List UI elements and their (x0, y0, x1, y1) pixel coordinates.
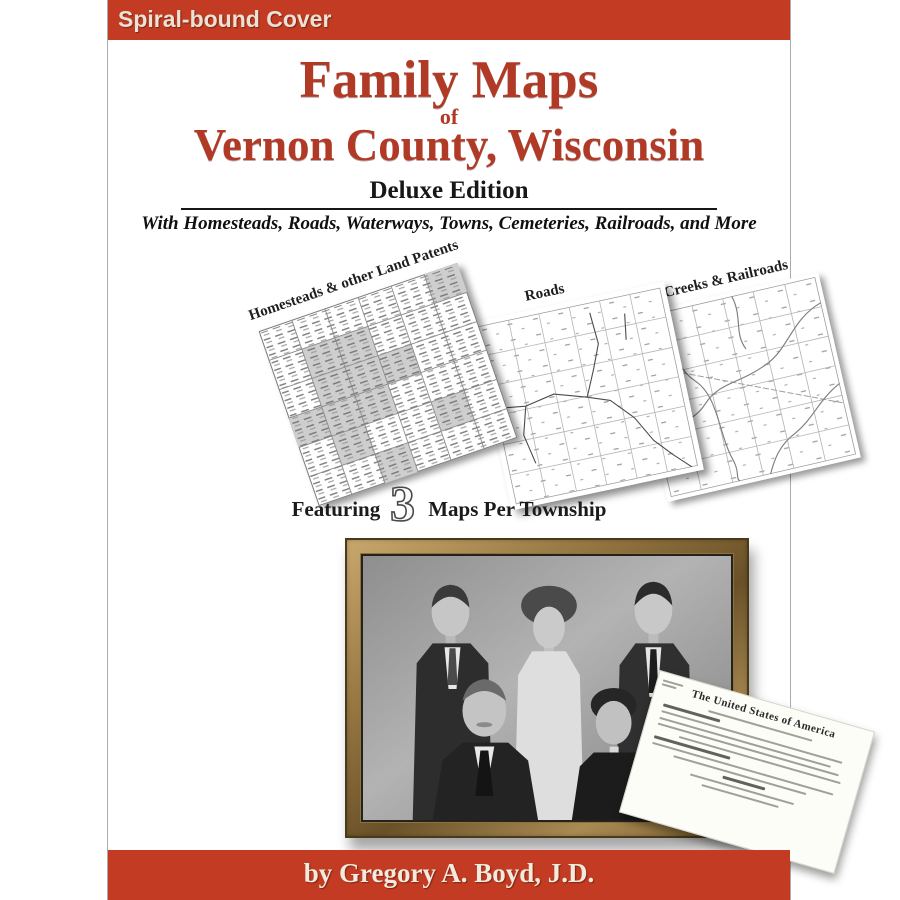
edition-label: Deluxe Edition (108, 177, 790, 205)
format-banner: Spiral-bound Cover (108, 0, 790, 40)
cover-page: Spiral-bound Cover Family Maps of Vernon… (107, 0, 791, 900)
divider-line (181, 208, 717, 210)
subtitle: With Homesteads, Roads, Waterways, Towns… (108, 213, 790, 235)
featuring-line: Featuring 3 Maps Per Township (108, 487, 790, 531)
byline-bar: by Gregory A. Boyd, J.D. (108, 850, 790, 900)
title-block: Family Maps of Vernon County, Wisconsin … (108, 40, 790, 235)
document-corner-marks (661, 677, 685, 693)
featuring-suffix: Maps Per Township (428, 497, 606, 522)
book-cover-product-image: Spiral-bound Cover Family Maps of Vernon… (0, 0, 900, 900)
land-patent-document: The United States of America (619, 670, 875, 874)
map-thumbnail-homesteads: Homesteads & other Land Patents (259, 263, 518, 506)
roads-map-graphic (478, 288, 698, 505)
map-thumbnail-roads: Roads (472, 282, 704, 511)
featuring-prefix: Featuring (292, 497, 381, 522)
format-banner-label: Spiral-bound Cover (118, 6, 331, 32)
title-main: Family Maps (108, 54, 790, 107)
featuring-number-graphic: 3 (387, 475, 421, 531)
featuring-number: 3 (390, 475, 415, 531)
author-byline: by Gregory A. Boyd, J.D. (108, 850, 790, 896)
title-county: Vernon County, Wisconsin (108, 123, 790, 168)
